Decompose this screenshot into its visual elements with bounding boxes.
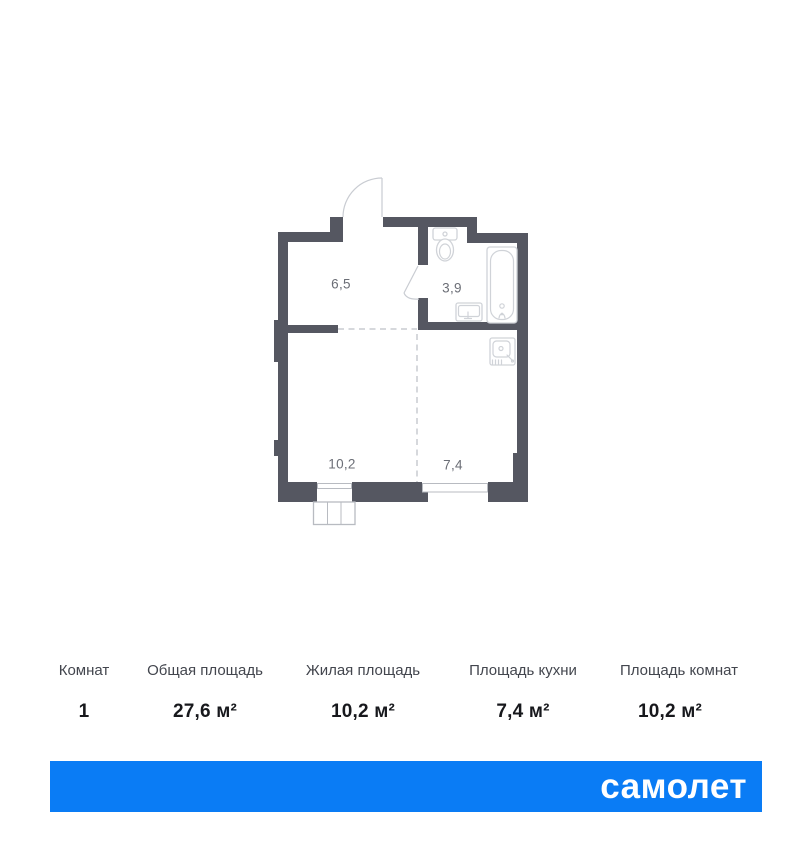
bathtub-icon	[487, 247, 517, 323]
kitchen-window	[422, 483, 488, 492]
column-header: Площадь комнат	[594, 663, 764, 680]
living-window	[317, 483, 352, 489]
kitchen-sink-icon	[490, 338, 515, 365]
column-value: 10,2 м²	[585, 701, 755, 723]
column-rooms-area: Площадь комнат 10,2 м²	[594, 663, 764, 723]
brand-footer: самолет	[50, 761, 762, 812]
room-label-kitchen: 7,4	[443, 458, 463, 473]
column-value: 27,6 м²	[120, 701, 290, 723]
listing-card: 6,5 3,9 10,2 7,4 Комнат 1 Общая площадь …	[0, 0, 800, 850]
column-value: 10,2 м²	[278, 701, 448, 723]
entrance-door-arc	[343, 178, 382, 217]
column-header: Общая площадь	[120, 663, 290, 680]
column-value: 7,4 м²	[438, 701, 608, 723]
brand-logo: самолет	[600, 769, 762, 804]
bathroom-door-arc	[404, 266, 419, 299]
room-label-living: 10,2	[328, 457, 355, 472]
bathroom-sink-icon	[456, 303, 482, 321]
column-total-area: Общая площадь 27,6 м²	[120, 663, 290, 723]
column-header: Площадь кухни	[438, 663, 608, 680]
toilet-icon	[433, 228, 457, 261]
balcony-icon	[314, 502, 356, 525]
column-living-area: Жилая площадь 10,2 м²	[278, 663, 448, 723]
floorplan-svg	[0, 0, 800, 850]
room-label-hallway: 6,5	[331, 277, 351, 292]
room-label-bathroom: 3,9	[442, 281, 462, 296]
column-header: Жилая площадь	[278, 663, 448, 680]
column-kitchen-area: Площадь кухни 7,4 м²	[438, 663, 608, 723]
